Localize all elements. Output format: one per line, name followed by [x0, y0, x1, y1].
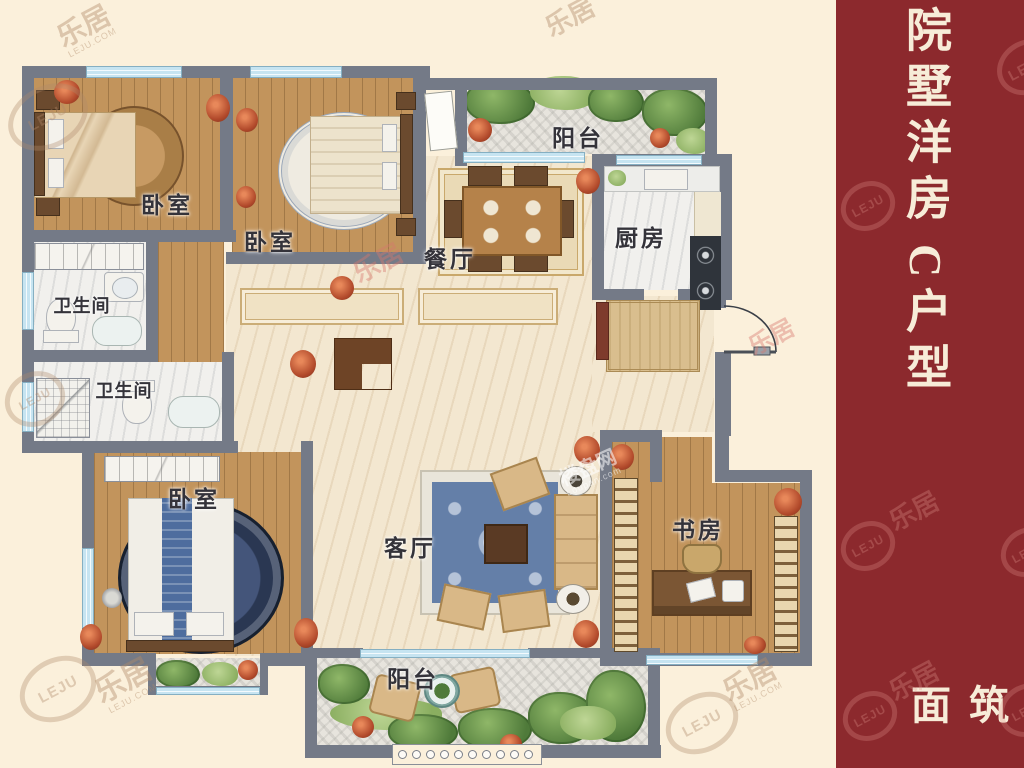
window: [156, 687, 260, 695]
watermark-leju: 乐居: [541, 0, 599, 41]
piano-notch: [362, 364, 391, 389]
watermark-text: 乐居: [884, 486, 944, 537]
watermark-text: LEJU: [849, 532, 886, 561]
nightstand: [36, 196, 60, 216]
wardrobe: [104, 456, 220, 482]
pillow: [186, 612, 224, 636]
plant: [156, 660, 200, 688]
window: [360, 649, 530, 658]
flower: [330, 276, 354, 300]
dining-chair: [514, 166, 548, 186]
flower: [80, 624, 102, 650]
desk-lamp: [722, 580, 744, 602]
hall-rug: [240, 288, 404, 325]
wall: [705, 78, 717, 166]
wall: [305, 648, 317, 758]
plant: [608, 170, 626, 186]
dining-chair: [444, 200, 462, 238]
room-label-dining: 餐厅: [424, 240, 476, 274]
dining-table: [462, 186, 562, 256]
watermark-leju: 乐居LEJU.COM: [53, 1, 120, 60]
flower: [290, 350, 316, 378]
sink-basin: [112, 277, 138, 299]
watermark-leju: 乐居: [885, 487, 943, 534]
pillow: [382, 162, 397, 190]
flower: [468, 118, 492, 142]
railing-dot: [510, 750, 519, 759]
bathtub: [92, 316, 142, 346]
watermark-text: LEJU: [16, 385, 53, 414]
flower: [206, 94, 230, 122]
plant: [560, 706, 616, 740]
sidebar-panel: 院墅洋房 C户型 建筑面 LEJU LEJU 乐居 LEJU LEJU 乐居 L…: [836, 0, 1024, 768]
room-label-bedroom3: 卧室: [168, 480, 220, 514]
room-label-bathroom2: 卫生间: [96, 377, 153, 403]
window: [646, 655, 758, 665]
watermark-text: LEJU: [35, 672, 80, 707]
wall: [720, 154, 732, 300]
watermark-text: LEJU: [851, 702, 888, 731]
railing-dot: [412, 750, 421, 759]
nightstand: [396, 92, 416, 110]
window: [616, 155, 702, 165]
railing-dot: [426, 750, 435, 759]
sofa: [554, 494, 598, 590]
toilet-tank: [43, 330, 79, 343]
pillow: [134, 612, 174, 636]
flower: [744, 636, 766, 654]
window: [463, 152, 585, 163]
flower: [774, 488, 802, 516]
wardrobe: [34, 243, 144, 270]
watermark-text: LEJU: [25, 100, 70, 135]
wall: [528, 648, 660, 658]
railing-dots: [398, 750, 536, 759]
floorplan-page: 卧室 卧室 卫生间 卫生间 卧室 餐厅 厨房 客厅 书房 阳台 阳台 乐居LEJ…: [0, 0, 1024, 768]
room-label-balcony-bottom: 阳台: [387, 660, 439, 694]
coffee-table: [484, 524, 528, 564]
watermark-leju-logo: LEJU: [992, 518, 1024, 587]
plant: [318, 664, 370, 704]
shoe-cabinet: [596, 302, 609, 360]
armchair: [498, 589, 551, 633]
window: [250, 66, 342, 78]
window: [22, 272, 34, 330]
flower: [236, 186, 256, 208]
flower: [294, 618, 318, 648]
nightstand: [396, 218, 416, 236]
room-label-bathroom1: 卫生间: [54, 292, 111, 318]
wall: [715, 352, 731, 436]
plan-title: 院墅洋房: [892, 6, 958, 230]
watermark-text: 乐居: [540, 0, 600, 42]
floor-lamp: [102, 588, 122, 608]
plant: [202, 662, 238, 686]
headboard: [400, 114, 413, 214]
plan-unit: C户型: [892, 244, 958, 399]
watermark-text: LEJU: [679, 706, 724, 741]
watermark-text: LEJU: [1009, 696, 1024, 725]
headboard: [126, 640, 234, 652]
wall: [650, 430, 662, 482]
room-label-bedroom1: 卧室: [141, 186, 193, 220]
kitchen-sink: [644, 169, 688, 190]
railing-dot: [468, 750, 477, 759]
interior-door: [424, 91, 458, 152]
wall: [22, 350, 158, 362]
flower: [573, 620, 599, 648]
flower: [352, 716, 374, 738]
room-label-living: 客厅: [384, 529, 436, 563]
wall: [22, 441, 238, 453]
dining-chair: [468, 166, 502, 186]
railing-dot: [482, 750, 491, 759]
watermark-text: LEJU: [1009, 538, 1024, 567]
entry-mat: [606, 300, 700, 372]
railing-dot: [398, 750, 407, 759]
watermark-leju-logo: LEJU: [987, 28, 1024, 106]
wall: [220, 66, 233, 242]
railing-dot: [454, 750, 463, 759]
watermark-text: LEJU: [849, 192, 886, 221]
window: [82, 548, 94, 628]
railing-dot: [524, 750, 533, 759]
flower: [236, 108, 258, 132]
flower: [650, 128, 670, 148]
flower: [576, 168, 600, 194]
railing-dot: [496, 750, 505, 759]
pillow: [382, 124, 397, 152]
wall: [22, 230, 236, 242]
bathtub: [168, 396, 220, 428]
wall: [222, 352, 234, 452]
wall: [146, 230, 158, 356]
room-label-bedroom2: 卧室: [244, 223, 296, 257]
pillow: [48, 158, 64, 188]
window: [86, 66, 182, 78]
wall: [715, 470, 812, 482]
hall-rug: [418, 288, 558, 325]
side-table: [556, 584, 590, 614]
watermark-text: LEJU: [1005, 50, 1024, 85]
railing-dot: [440, 750, 449, 759]
desk-chair: [682, 544, 722, 574]
room-label-balcony-top: 阳台: [552, 119, 604, 153]
room-label-kitchen: 厨房: [615, 219, 667, 253]
flower: [238, 660, 258, 680]
bookshelf: [774, 516, 798, 652]
wall: [592, 289, 644, 300]
room-label-study: 书房: [672, 511, 724, 545]
bookshelf: [614, 478, 638, 652]
